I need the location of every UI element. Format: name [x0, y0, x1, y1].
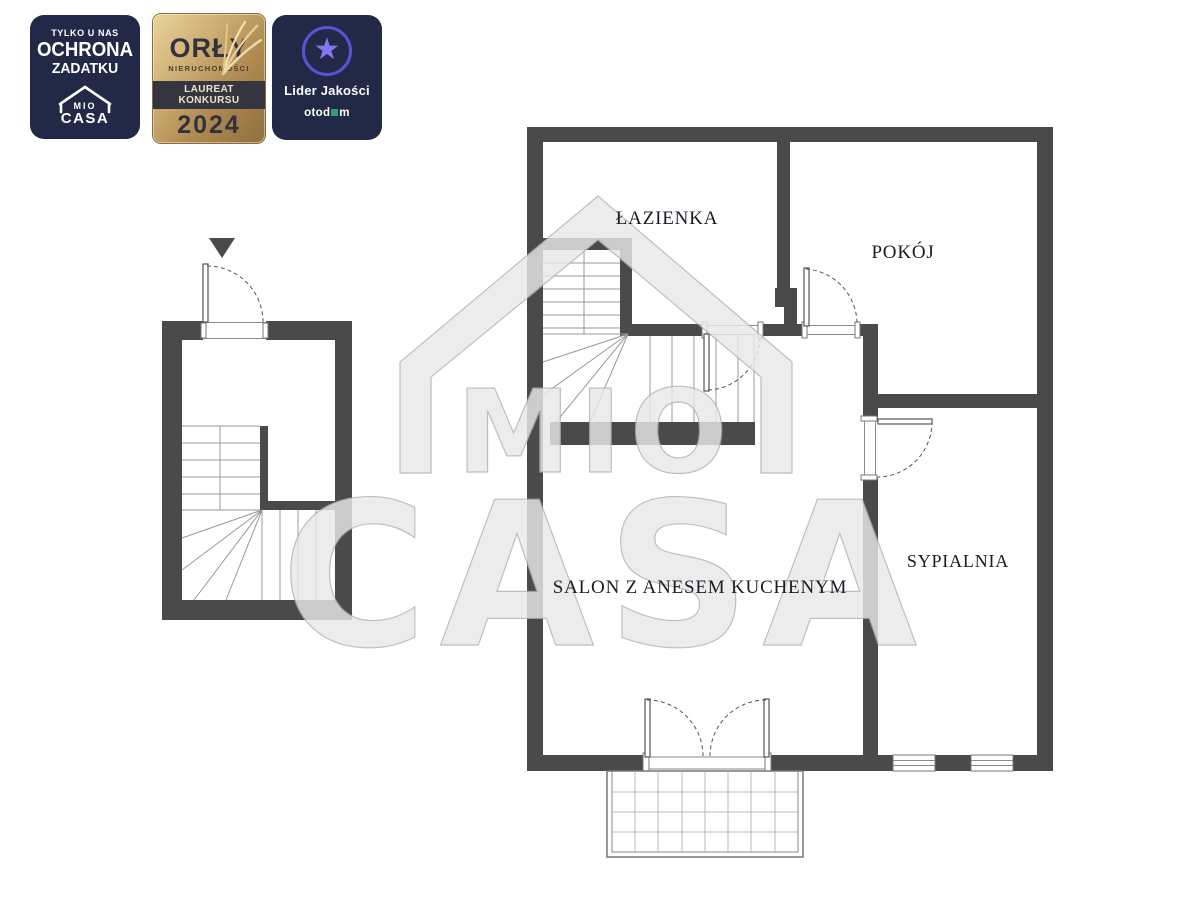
badge-ochrona-line2: OCHRONA — [34, 40, 136, 61]
badge-orly-band: LAUREAT KONKURSU — [153, 81, 265, 109]
window-1 — [893, 755, 935, 771]
entrance-arrow-icon — [209, 238, 235, 258]
room-label-sypialnia: SYPIALNIA — [907, 551, 1009, 571]
watermark: MIO CASA — [281, 196, 929, 693]
star-icon: ★ — [314, 35, 341, 65]
badge-lider-jakosci: ★ Lider Jakości otodm — [272, 15, 382, 140]
otodom-logo-suffix: m — [339, 107, 350, 119]
star-ring-icon: ★ — [302, 26, 352, 76]
badge-orly-2024: ORŁY NIERUCHOMOŚCI LAUREAT KONKURSU 2024 — [153, 14, 265, 143]
entrance-door — [201, 264, 268, 339]
balcony — [607, 771, 803, 857]
gold-wing-icon — [215, 18, 263, 76]
mio-casa-logo-bottom: CASA — [61, 110, 110, 126]
otodom-green-square-icon — [331, 109, 338, 116]
floorplan-page: MIO CASA ŁAZIENKA POKÓJ SYPIALNIA SALON … — [0, 0, 1200, 900]
badge-ochrona-line1: TYLKO U NAS — [30, 28, 140, 38]
mio-casa-logo-icon: MIO CASA — [30, 82, 140, 131]
badge-lider-title: Lider Jakości — [272, 83, 382, 98]
badge-ochrona-line3: ZADATKU — [32, 61, 138, 77]
room-label-lazienka: ŁAZIENKA — [616, 208, 718, 229]
balcony-door — [643, 699, 771, 773]
room-label-pokoj: POKÓJ — [871, 241, 934, 263]
pokoj-door — [802, 268, 860, 338]
room-label-salon: SALON Z ANESEM KUCHENYM — [553, 577, 847, 598]
window-2 — [971, 755, 1013, 771]
otodom-logo-prefix: otod — [304, 107, 330, 119]
badge-orly-year: 2024 — [153, 113, 265, 138]
badge-ochrona-zadatku: TYLKO U NAS OCHRONA ZADATKU MIO CASA — [30, 15, 140, 139]
otodom-logo: otodm — [272, 107, 382, 119]
